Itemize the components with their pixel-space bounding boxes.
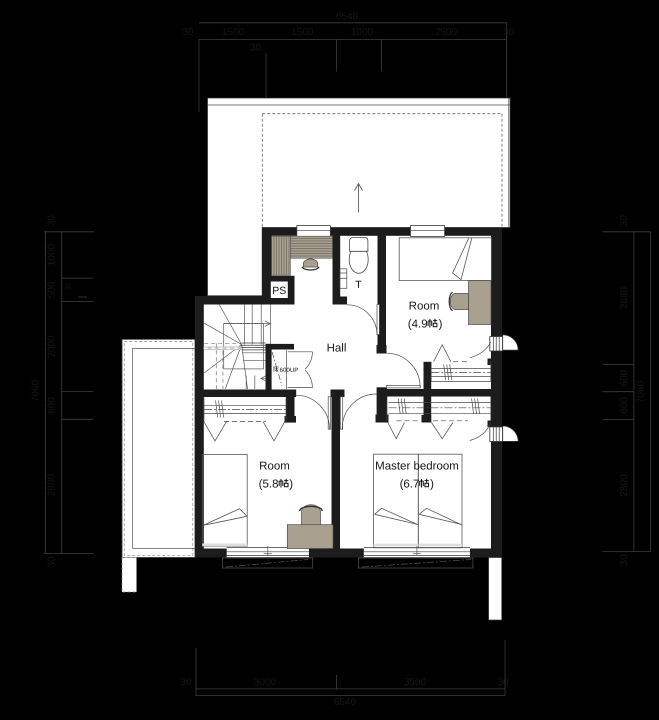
svg-text:(6.7: (6.7	[400, 479, 420, 491]
svg-text:30: 30	[497, 677, 509, 688]
svg-text:7060: 7060	[30, 379, 41, 402]
svg-text:PS: PS	[272, 285, 286, 297]
svg-text:30: 30	[619, 554, 630, 566]
svg-text:(5.8: (5.8	[259, 479, 279, 491]
svg-text:3000: 3000	[254, 677, 277, 688]
svg-text:(4.9: (4.9	[408, 319, 428, 331]
svg-text:2800: 2800	[47, 473, 58, 496]
svg-text:Room: Room	[259, 461, 290, 473]
svg-text:Room: Room	[409, 301, 440, 313]
svg-text:30: 30	[47, 556, 58, 568]
svg-text:30: 30	[65, 282, 72, 290]
svg-text:Hall: Hall	[327, 343, 347, 355]
svg-text:): )	[430, 479, 434, 491]
svg-text:): )	[439, 319, 443, 331]
svg-text:30: 30	[503, 27, 515, 38]
svg-text:2800: 2800	[619, 474, 630, 497]
svg-text:30: 30	[619, 215, 630, 227]
svg-text:6540: 6540	[334, 697, 357, 708]
svg-text:30: 30	[47, 215, 58, 227]
svg-text:7060: 7060	[635, 380, 646, 403]
svg-text:30: 30	[250, 43, 262, 54]
svg-text:1000: 1000	[351, 27, 374, 38]
svg-text:2600: 2600	[619, 286, 630, 309]
svg-text:T: T	[355, 279, 362, 291]
svg-text:500: 500	[47, 281, 58, 298]
svg-text:30: 30	[180, 677, 192, 688]
svg-text:30: 30	[182, 27, 194, 38]
svg-text:3500: 3500	[404, 677, 427, 688]
svg-text:600: 600	[47, 397, 58, 414]
svg-text:600: 600	[619, 397, 630, 414]
svg-text:600UP: 600UP	[280, 367, 299, 374]
svg-text:600: 600	[619, 369, 630, 386]
svg-text:): )	[289, 479, 293, 491]
svg-text:Master bedroom: Master bedroom	[375, 461, 459, 473]
svg-text:2500: 2500	[435, 27, 458, 38]
svg-text:1500: 1500	[291, 27, 314, 38]
svg-text:2000: 2000	[47, 335, 58, 358]
svg-text:1000: 1000	[47, 243, 58, 266]
svg-text:6540: 6540	[336, 12, 359, 23]
svg-text:1500: 1500	[222, 27, 245, 38]
